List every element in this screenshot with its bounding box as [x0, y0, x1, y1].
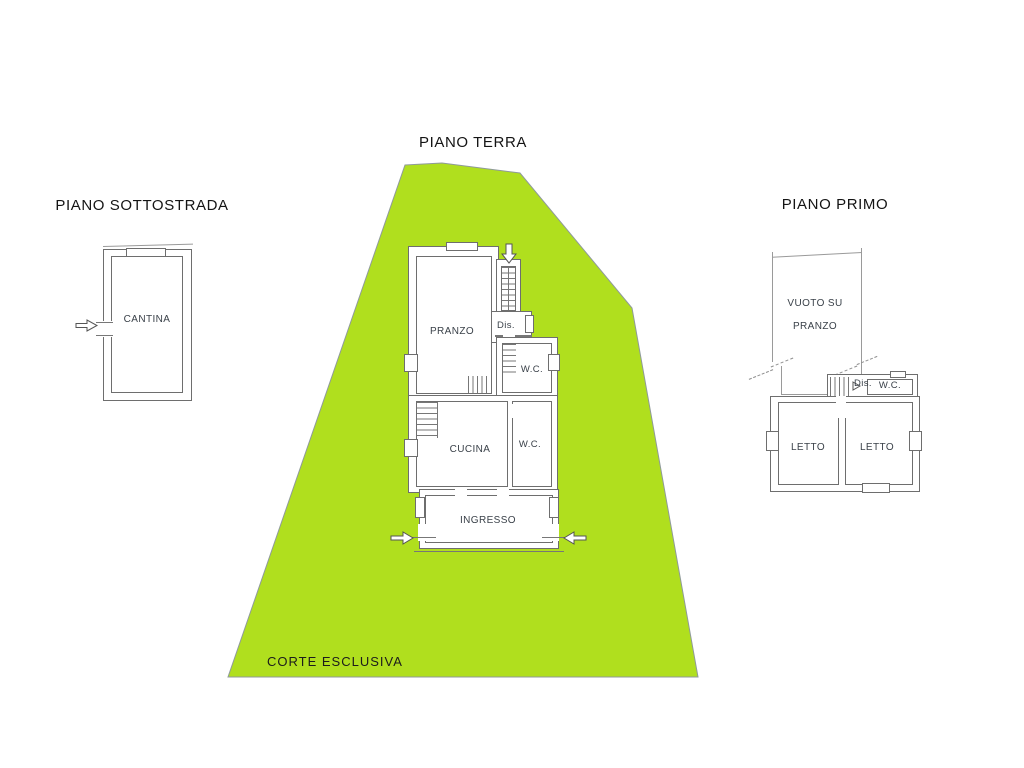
- wall-segment: [495, 335, 503, 337]
- window-marker: [126, 248, 166, 257]
- window-marker: [404, 354, 418, 372]
- window-marker: [446, 242, 478, 251]
- floor-plan-sheet: CORTE ESCLUSIVA PIANO TERRA PIANO SOTTOS…: [0, 0, 1024, 768]
- stairs-icon: [830, 377, 852, 396]
- room-label-cantina: CANTINA: [107, 314, 187, 325]
- door-opening: [497, 488, 509, 496]
- door-opening: [508, 404, 516, 418]
- room-label-pranzo: PRANZO: [412, 326, 492, 337]
- room-label-letto-left: LETTO: [768, 442, 848, 453]
- window-marker: [862, 483, 890, 493]
- window-marker: [890, 371, 906, 378]
- window-marker: [525, 315, 534, 333]
- stairs-icon: [417, 402, 437, 438]
- door-opening: [455, 488, 467, 496]
- ground-floor-title: PIANO TERRA: [373, 134, 573, 151]
- window-marker: [549, 497, 559, 518]
- stair-direction-line: [508, 267, 509, 310]
- courtyard-label: CORTE ESCLUSIVA: [267, 654, 403, 669]
- landing-line: [781, 394, 829, 395]
- stairs-icon: [468, 376, 490, 393]
- window-marker: [404, 439, 418, 457]
- landing-line: [781, 366, 782, 395]
- entrance-door-opening: [418, 524, 426, 541]
- room-label-wc-bottom: W.C.: [510, 439, 550, 450]
- vuoto-left-line: [772, 252, 773, 362]
- room-label-wc-first: W.C.: [870, 380, 910, 391]
- door-opening: [836, 396, 846, 418]
- stair-edge-line: [437, 402, 438, 438]
- entrance-arrow-icon: [390, 531, 414, 545]
- room-label-vuoto-line2: PRANZO: [775, 321, 855, 332]
- entrance-step-line: [414, 551, 564, 552]
- first-floor-title: PIANO PRIMO: [735, 196, 935, 213]
- wall-segment: [515, 335, 532, 337]
- door-threshold-line: [96, 335, 113, 336]
- room-label-dis: Dis.: [488, 320, 524, 331]
- entrance-door-opening: [551, 524, 559, 541]
- room-label-cucina: CUCINA: [430, 444, 510, 455]
- room-pranzo: [416, 256, 492, 394]
- room-label-wc-top: W.C.: [512, 364, 552, 375]
- entrance-arrow-icon: [563, 531, 587, 545]
- room-label-vuoto-line1: VUOTO SU: [775, 298, 855, 309]
- room-label-ingresso: INGRESSO: [448, 515, 528, 526]
- stair-down-arrow-icon: [501, 243, 517, 264]
- entrance-arrow-icon: [75, 319, 98, 332]
- vuoto-right-line: [861, 248, 862, 376]
- window-marker: [415, 497, 425, 518]
- room-label-letto-right: LETTO: [837, 442, 917, 453]
- basement-title: PIANO SOTTOSTRADA: [42, 197, 242, 214]
